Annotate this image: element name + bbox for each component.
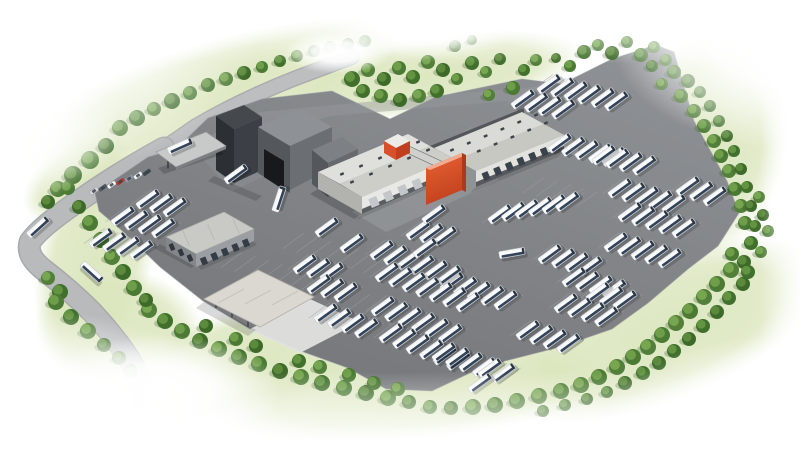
tree-highlight [742,182,749,189]
tree-highlight [140,294,149,303]
tree-highlight [723,292,732,301]
bus-depot-aerial-rendering [0,0,800,449]
tree-highlight [626,350,636,360]
tree-highlight [250,340,259,349]
tree-highlight [116,265,126,275]
tree-highlight [293,355,302,364]
tree-highlight [738,256,747,265]
tree-highlight [413,90,422,99]
tree-highlight [158,314,168,324]
tree-highlight [683,304,693,314]
tree-highlight [175,324,185,334]
tree-highlight [73,201,82,210]
tree-highlight [452,74,459,81]
tree-highlight [710,277,720,287]
tree-highlight [519,65,526,72]
tree-highlight [641,340,651,350]
tree-highlight [53,285,63,295]
tree-highlight [83,216,93,226]
tree-highlight [739,217,748,226]
tree-highlight [737,278,746,287]
tree-highlight [437,64,446,73]
tree-highlight [669,316,679,326]
tree-highlight [127,281,137,291]
tree-highlight [655,328,665,338]
tree-highlight [750,221,757,228]
tree-highlight [745,237,754,246]
tree-highlight [431,85,440,94]
tree-highlight [736,164,743,171]
scene-content [0,0,800,449]
tree-highlight [394,94,403,103]
tree-highlight [729,146,736,153]
tree-highlight [715,150,724,159]
tree-highlight [49,295,59,305]
tree-highlight [724,263,734,273]
tree-highlight [726,248,735,257]
tree-highlight [668,345,677,354]
tree-highlight [375,90,384,99]
tree-highlight [697,290,707,300]
tree-highlight [746,201,753,208]
tree-highlight [711,306,720,315]
tree-highlight [481,67,488,74]
site-plan-svg [0,0,800,449]
tree-highlight [200,320,209,329]
tree-highlight [697,320,706,329]
tree-highlight [357,85,366,94]
tree-highlight [723,165,732,174]
tree-highlight [230,333,239,342]
tree-highlight [610,360,620,370]
tree-highlight [42,272,51,281]
tree-highlight [507,82,516,91]
depot-orange-tower-side [462,153,466,192]
tree-highlight [735,200,744,209]
tree-highlight [314,361,323,370]
vignette-overlay [40,335,280,445]
tree-highlight [407,71,416,80]
tree-highlight [729,183,738,192]
tree-highlight [683,333,692,342]
vignette-overlay [283,30,393,74]
tree-highlight [742,266,751,275]
tree-highlight [378,73,387,82]
tree-highlight [484,90,491,97]
